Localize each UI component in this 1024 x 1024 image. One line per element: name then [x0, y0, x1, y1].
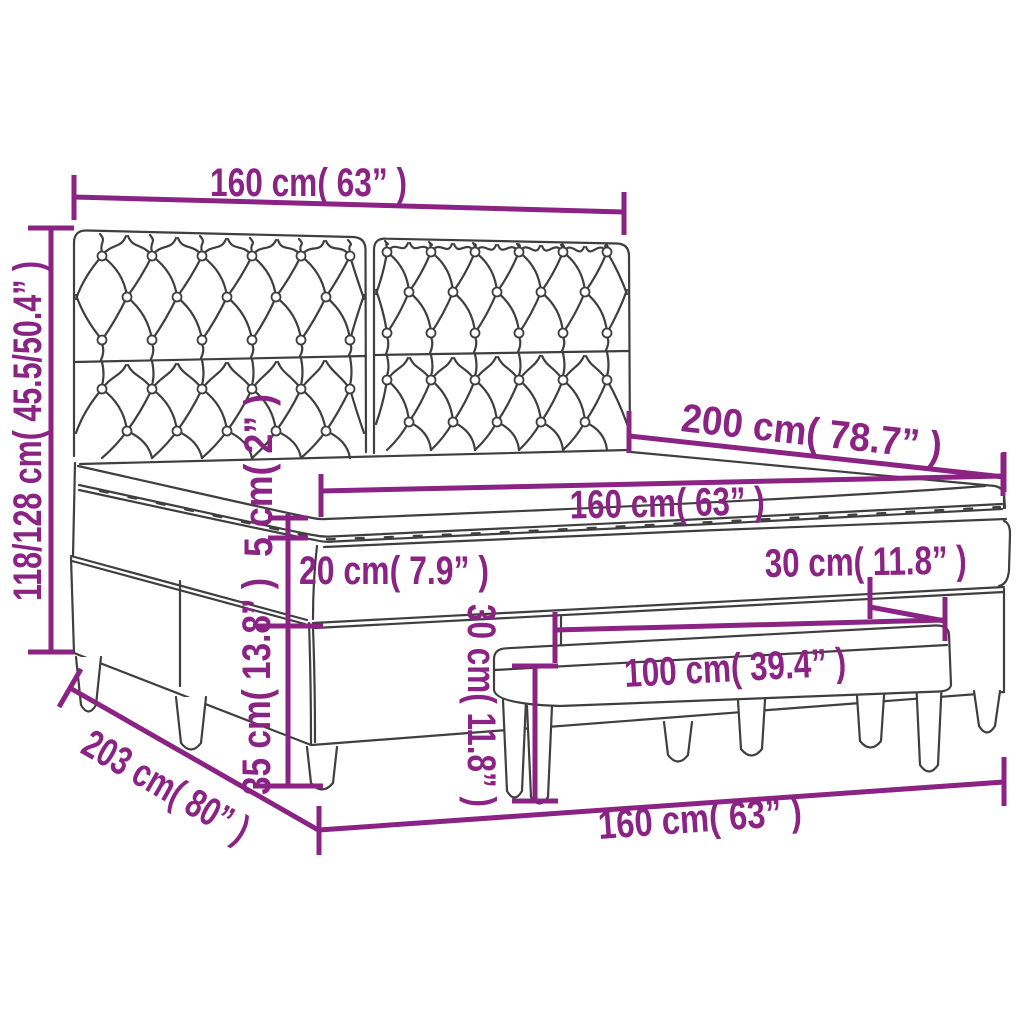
svg-text:160 cm( 63” ): 160 cm( 63” ): [210, 161, 407, 205]
svg-text:30 cm( 11.8” ): 30 cm( 11.8” ): [764, 538, 967, 586]
svg-text:35 cm( 13.8” ): 35 cm( 13.8” ): [235, 578, 279, 795]
svg-text:20 cm( 7.9” ): 20 cm( 7.9” ): [299, 549, 489, 593]
svg-text:30 cm( 11.8” ): 30 cm( 11.8” ): [459, 604, 503, 807]
svg-text:5 cm( 2” ): 5 cm( 2” ): [237, 394, 281, 557]
svg-text:118/128 cm( 45.5/50.4” ): 118/128 cm( 45.5/50.4” ): [6, 261, 50, 601]
svg-text:160 cm( 63” ): 160 cm( 63” ): [569, 479, 765, 527]
